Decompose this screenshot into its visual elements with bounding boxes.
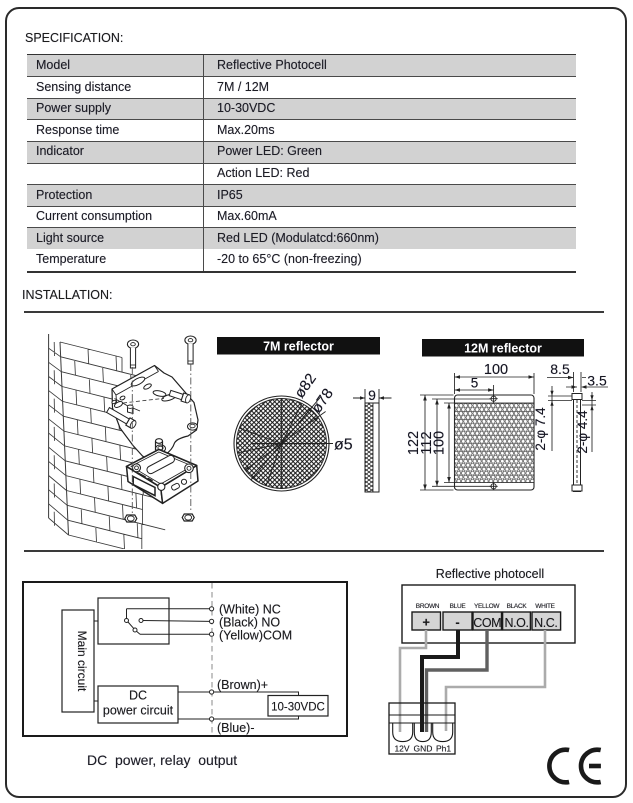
svg-text:N.C.: N.C. [534, 616, 557, 630]
svg-text:YELLOW: YELLOW [474, 603, 500, 610]
svg-text:2-φ 7.4: 2-φ 7.4 [533, 407, 548, 451]
svg-text:8.5: 8.5 [550, 361, 570, 377]
svg-text:power circuit: power circuit [103, 704, 174, 718]
svg-text:GND: GND [414, 744, 433, 754]
svg-text:(Blue)-: (Blue)- [217, 721, 255, 735]
svg-text:10-30VDC: 10-30VDC [271, 702, 325, 714]
svg-text:(White) NC: (White) NC [219, 603, 281, 617]
svg-text:12M reflector: 12M reflector [464, 342, 542, 356]
svg-text:Ph1: Ph1 [436, 744, 451, 754]
svg-text:(Yellow)COM: (Yellow)COM [219, 629, 292, 643]
svg-text:WHITE: WHITE [535, 603, 555, 610]
svg-text:100: 100 [432, 431, 448, 455]
svg-text:BROWN: BROWN [416, 603, 440, 610]
svg-text:9: 9 [368, 387, 376, 403]
svg-text:-: - [455, 615, 459, 630]
svg-text:BLACK: BLACK [507, 603, 528, 610]
svg-text:DC: DC [129, 689, 147, 703]
svg-text:COM: COM [473, 616, 501, 630]
svg-text:Reflective photocell: Reflective photocell [436, 567, 544, 581]
svg-text:100: 100 [484, 362, 508, 378]
svg-text:12V: 12V [394, 744, 409, 754]
svg-text:(Black) NO: (Black) NO [219, 616, 280, 630]
svg-text:+: + [422, 615, 430, 630]
svg-text:Main circuit: Main circuit [75, 631, 89, 692]
svg-text:5: 5 [471, 376, 479, 391]
svg-text:ø5: ø5 [334, 437, 353, 454]
svg-text:(Brown)+: (Brown)+ [217, 678, 268, 692]
svg-text:BLUE: BLUE [450, 603, 467, 610]
svg-text:2-φ 4.4: 2-φ 4.4 [575, 410, 590, 454]
svg-text:3.5: 3.5 [587, 373, 607, 389]
svg-text:7M reflector: 7M reflector [263, 340, 334, 354]
svg-text:N.O.: N.O. [504, 616, 528, 630]
